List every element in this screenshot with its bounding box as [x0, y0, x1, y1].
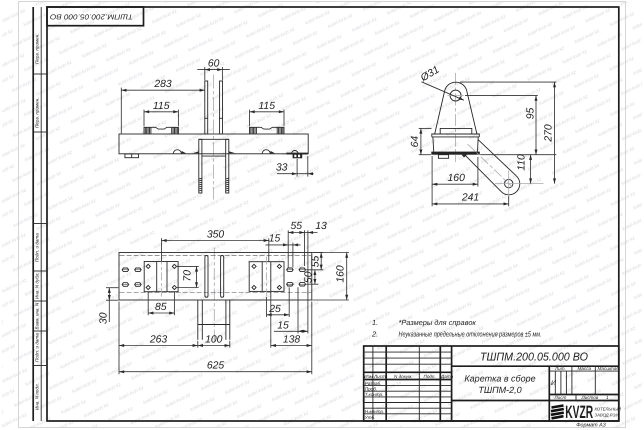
svg-text:Н.контр.: Н.контр.	[365, 409, 384, 414]
svg-text:283: 283	[153, 79, 172, 90]
svg-text:1.: 1.	[372, 318, 378, 327]
svg-text:Изм: Изм	[364, 374, 373, 379]
svg-text:110: 110	[517, 154, 528, 171]
svg-text:Проб.: Проб.	[365, 387, 377, 392]
svg-text:60: 60	[208, 59, 220, 70]
svg-text:ТШПМ.200.05.000 ВО: ТШПМ.200.05.000 ВО	[480, 351, 588, 363]
svg-text:160: 160	[448, 173, 466, 184]
svg-text:55: 55	[310, 256, 321, 268]
svg-text:Перв. примен.: Перв. примен.	[35, 33, 40, 64]
svg-text:Дата: Дата	[440, 374, 454, 379]
svg-text:Т.контр.: Т.контр.	[365, 392, 384, 397]
svg-text:Масштаб: Масштаб	[598, 366, 620, 371]
svg-text:Перв. примен.: Перв. примен.	[35, 97, 40, 128]
svg-text:Подп. и дата: Подп. и дата	[35, 333, 40, 362]
svg-text:КОТЕЛЬНЫЙ: КОТЕЛЬНЫЙ	[595, 407, 621, 412]
svg-text:Инв. N подл.: Инв. N подл.	[35, 383, 40, 410]
svg-text:Инв. N дубл.: Инв. N дубл.	[35, 272, 40, 299]
svg-text:625: 625	[207, 361, 225, 372]
svg-text:13: 13	[315, 221, 327, 232]
svg-text:50: 50	[304, 271, 315, 283]
svg-text:100: 100	[205, 335, 223, 346]
svg-text:Разраб.: Разраб.	[365, 381, 382, 386]
svg-text:Лит.: Лит.	[554, 366, 566, 371]
svg-text:160: 160	[336, 265, 347, 283]
svg-text:*Размеры для справок: *Размеры для справок	[399, 318, 477, 327]
svg-text:95: 95	[525, 108, 536, 120]
svg-text:85: 85	[155, 302, 167, 313]
svg-text:Утб.: Утб.	[365, 415, 376, 420]
svg-text:Взам. инв. N: Взам. инв. N	[35, 302, 40, 329]
svg-text:30: 30	[98, 312, 109, 324]
svg-text:138: 138	[283, 335, 301, 346]
svg-text:64: 64	[410, 136, 421, 148]
svg-text:2.: 2.	[371, 330, 378, 339]
svg-text:263: 263	[149, 335, 168, 346]
svg-text:25: 25	[268, 304, 281, 315]
svg-text:115: 115	[258, 101, 275, 112]
svg-text:Масса: Масса	[578, 366, 592, 371]
svg-text:Подп. и дата: Подп. и дата	[35, 233, 40, 262]
svg-text:1: 1	[606, 395, 609, 400]
svg-text:33: 33	[276, 162, 288, 173]
svg-text:KVZR: KVZR	[565, 402, 593, 422]
svg-text:Каретка в сборе: Каретка в сборе	[464, 374, 535, 384]
svg-text:15: 15	[277, 321, 289, 332]
svg-text:Лист: Лист	[554, 395, 567, 400]
svg-text:70: 70	[182, 270, 193, 282]
svg-text:Лист: Лист	[373, 374, 386, 379]
svg-text:Листов: Листов	[581, 395, 599, 400]
svg-text:ТШПМ.200.05.000 ВО: ТШПМ.200.05.000 ВО	[49, 13, 133, 21]
svg-text:15: 15	[269, 234, 281, 245]
svg-text:Формат А3: Формат А3	[576, 423, 606, 429]
svg-text:115: 115	[153, 101, 170, 112]
svg-text:ЗАВОД РЭУ: ЗАВОД РЭУ	[595, 413, 620, 418]
svg-text:Подп.: Подп.	[424, 374, 436, 379]
svg-text:N докум.: N докум.	[394, 374, 413, 379]
svg-text:241: 241	[461, 193, 479, 204]
svg-text:270: 270	[544, 124, 555, 143]
svg-text:350: 350	[207, 230, 225, 241]
svg-text:55: 55	[291, 221, 303, 232]
svg-text:ТШПМ-2,0: ТШПМ-2,0	[478, 385, 521, 395]
svg-text:Неуказанные предельные отклоне: Неуказанные предельные отклонения размер…	[399, 330, 542, 339]
